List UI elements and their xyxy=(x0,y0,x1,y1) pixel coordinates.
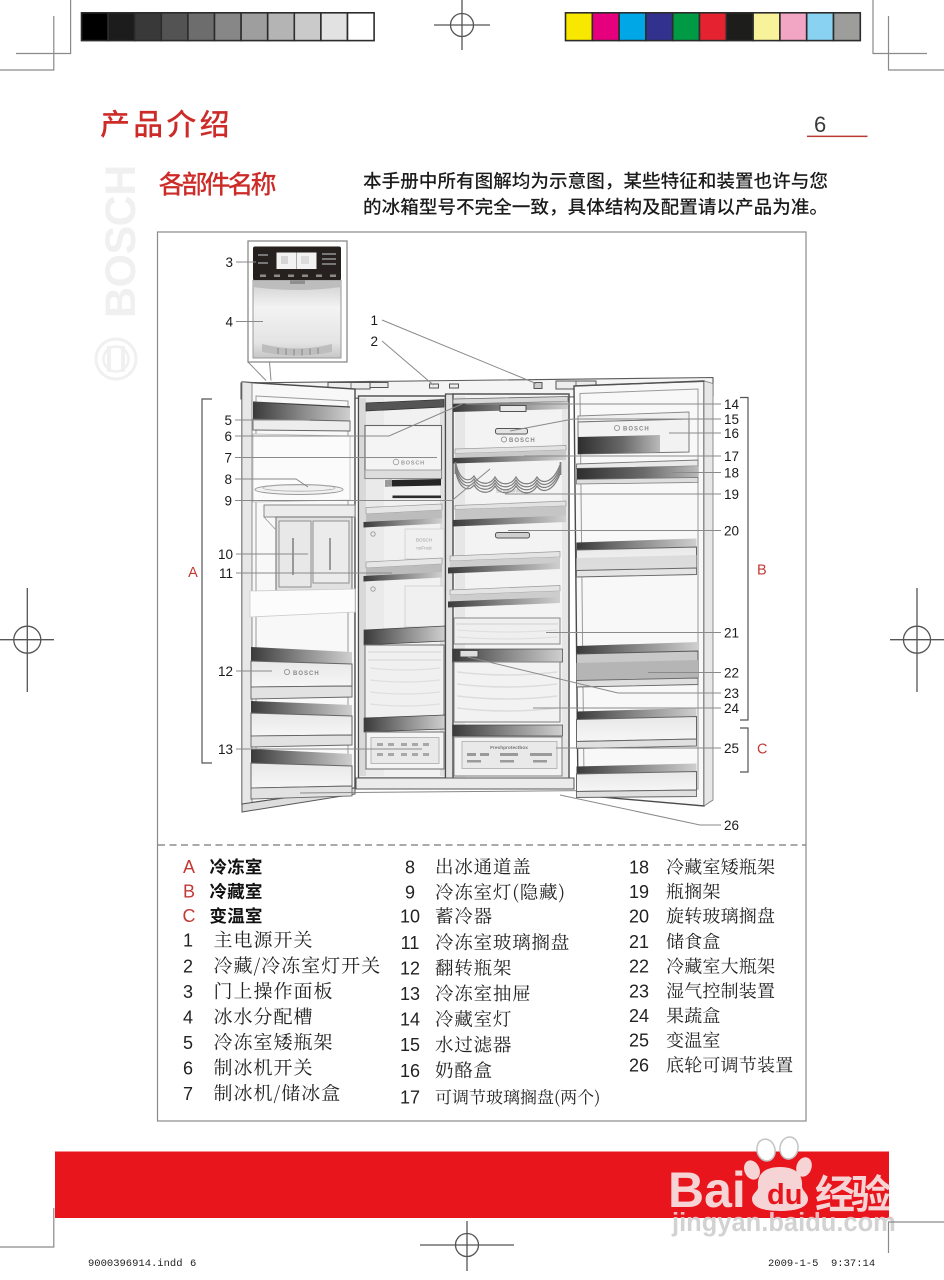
svg-text:21: 21 xyxy=(629,932,649,952)
svg-text:14: 14 xyxy=(724,397,740,412)
svg-text:2009-1-5 9:37:14: 2009-1-5 9:37:14 xyxy=(768,1258,875,1270)
svg-text:9: 9 xyxy=(224,494,232,509)
svg-text:noFrost: noFrost xyxy=(416,546,432,551)
svg-text:13: 13 xyxy=(218,742,233,757)
svg-text:22: 22 xyxy=(724,666,739,681)
svg-text:19: 19 xyxy=(629,882,649,902)
svg-text:25: 25 xyxy=(629,1031,649,1051)
svg-text:15: 15 xyxy=(724,412,739,427)
svg-text:BOSCH: BOSCH xyxy=(97,165,145,318)
svg-text:12: 12 xyxy=(218,664,233,679)
svg-text:10: 10 xyxy=(218,547,233,562)
svg-text:6: 6 xyxy=(224,429,232,444)
svg-text:3: 3 xyxy=(225,255,233,270)
svg-text:BOSCH: BOSCH xyxy=(293,671,320,677)
svg-text:BOSCH: BOSCH xyxy=(623,427,650,433)
svg-text:25: 25 xyxy=(724,741,739,756)
svg-text:B: B xyxy=(757,563,767,579)
svg-text:BIOfresh/Vt: BIOfresh/Vt xyxy=(496,489,520,494)
svg-text:5: 5 xyxy=(183,1033,193,1053)
svg-text:BOSCH: BOSCH xyxy=(416,538,432,543)
svg-text:6: 6 xyxy=(183,1058,193,1078)
svg-text:24: 24 xyxy=(629,1006,649,1026)
svg-text:10: 10 xyxy=(400,907,420,927)
svg-text:6: 6 xyxy=(190,1258,196,1270)
svg-text:16: 16 xyxy=(724,426,739,441)
svg-text:3: 3 xyxy=(183,982,193,1002)
svg-text:18: 18 xyxy=(724,466,739,481)
svg-text:7: 7 xyxy=(224,451,232,466)
svg-text:4: 4 xyxy=(225,315,233,330)
svg-text:1: 1 xyxy=(183,931,193,951)
svg-text:BOSCH: BOSCH xyxy=(509,438,536,444)
svg-text:BOSCH: BOSCH xyxy=(401,461,425,467)
svg-text:8: 8 xyxy=(405,857,415,877)
svg-text:22: 22 xyxy=(629,957,649,977)
svg-text:12: 12 xyxy=(400,958,420,978)
svg-text:9: 9 xyxy=(405,883,415,903)
svg-text:11: 11 xyxy=(401,933,420,953)
svg-text:23: 23 xyxy=(629,981,649,1001)
svg-text:23: 23 xyxy=(724,686,739,701)
svg-text:2: 2 xyxy=(183,956,193,976)
svg-text:4: 4 xyxy=(183,1007,193,1027)
svg-text:9000396914.indd: 9000396914.indd xyxy=(88,1258,183,1270)
svg-text:6: 6 xyxy=(814,112,826,137)
svg-text:21: 21 xyxy=(724,626,739,641)
svg-text:C: C xyxy=(757,742,767,758)
svg-text:B: B xyxy=(183,882,195,902)
svg-text:16: 16 xyxy=(400,1061,420,1081)
svg-text:15: 15 xyxy=(400,1035,420,1055)
svg-text:8: 8 xyxy=(224,472,232,487)
svg-text:A: A xyxy=(188,565,198,581)
svg-text:2: 2 xyxy=(370,334,378,349)
svg-text:13: 13 xyxy=(400,984,420,1004)
svg-text:17: 17 xyxy=(724,449,739,464)
svg-text:A: A xyxy=(183,857,195,877)
svg-text:18: 18 xyxy=(629,857,649,877)
svg-text:du: du xyxy=(767,1179,802,1211)
svg-text:11: 11 xyxy=(219,566,233,581)
svg-text:17: 17 xyxy=(400,1087,420,1107)
svg-text:26: 26 xyxy=(629,1055,649,1075)
svg-text:1: 1 xyxy=(370,313,378,328)
svg-text:14: 14 xyxy=(400,1010,420,1030)
svg-text:20: 20 xyxy=(724,524,739,539)
svg-text:20: 20 xyxy=(629,906,649,926)
svg-text:7: 7 xyxy=(183,1084,193,1104)
svg-text:C: C xyxy=(183,906,196,926)
svg-text:24: 24 xyxy=(724,701,740,716)
svg-text:Freshprotectbox: Freshprotectbox xyxy=(490,745,528,751)
svg-text:26: 26 xyxy=(724,818,739,833)
svg-text:19: 19 xyxy=(724,487,739,502)
svg-text:5: 5 xyxy=(224,413,232,428)
